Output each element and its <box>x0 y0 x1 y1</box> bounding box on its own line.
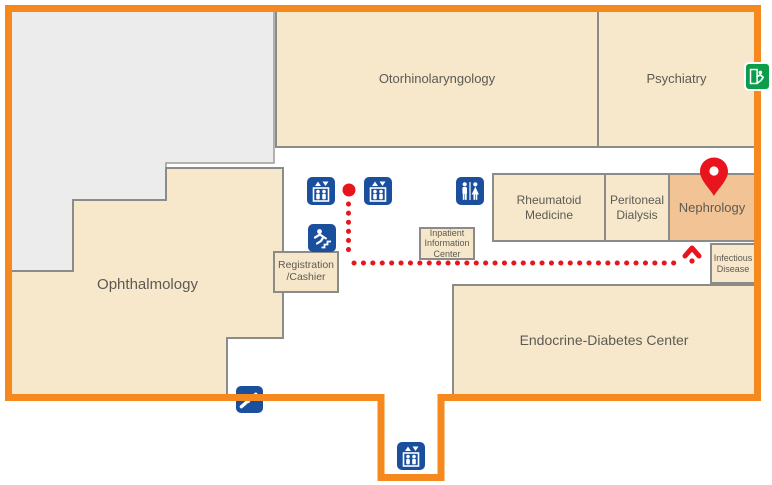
exit-icon <box>744 62 771 91</box>
elevator-icon <box>397 442 425 470</box>
room-psychiatry[interactable]: Psychiatry <box>597 9 756 148</box>
room-rheumatoid-medicine[interactable]: Rheumatoid Medicine <box>492 173 606 242</box>
hospital-floor-map: Otorhinolaryngology Psychiatry Rheumatoi… <box>0 0 772 485</box>
room-label: Infectious Disease <box>712 253 754 274</box>
room-otorhinolaryngology[interactable]: Otorhinolaryngology <box>275 9 599 148</box>
restroom-icon <box>456 177 484 205</box>
route-arrow-icon <box>685 248 699 256</box>
room-label: Rheumatoid Medicine <box>494 193 604 221</box>
room-nephrology[interactable]: Nephrology <box>668 173 756 242</box>
room-label: Otorhinolaryngology <box>277 71 597 86</box>
inpatient-line3: Center <box>433 249 460 259</box>
elevator-icon <box>307 177 335 205</box>
inpatient-line2: Information <box>424 238 469 248</box>
inpatient-information-center-box[interactable]: Inpatient Information Center <box>419 227 475 260</box>
inpatient-line1: Inpatient <box>430 228 465 238</box>
escalator-icon <box>236 386 263 413</box>
elevator-icon <box>364 177 392 205</box>
room-endocrine-diabetes-center[interactable]: Endocrine-Diabetes Center <box>452 284 756 397</box>
unlabeled-room-shape <box>9 9 274 271</box>
room-label: Endocrine-Diabetes Center <box>454 332 754 349</box>
room-label: Peritoneal Dialysis <box>606 193 668 221</box>
registration-line2: /Cashier <box>286 272 325 284</box>
room-label: Psychiatry <box>599 71 754 86</box>
room-label: Nephrology <box>670 200 754 215</box>
room-label-ophthalmology: Ophthalmology <box>60 276 235 294</box>
registration-cashier-box[interactable]: Registration /Cashier <box>273 251 339 293</box>
room-infectious-disease[interactable]: Infectious Disease <box>710 243 756 284</box>
room-peritoneal-dialysis[interactable]: Peritoneal Dialysis <box>604 173 670 242</box>
stairs-icon <box>308 224 336 252</box>
